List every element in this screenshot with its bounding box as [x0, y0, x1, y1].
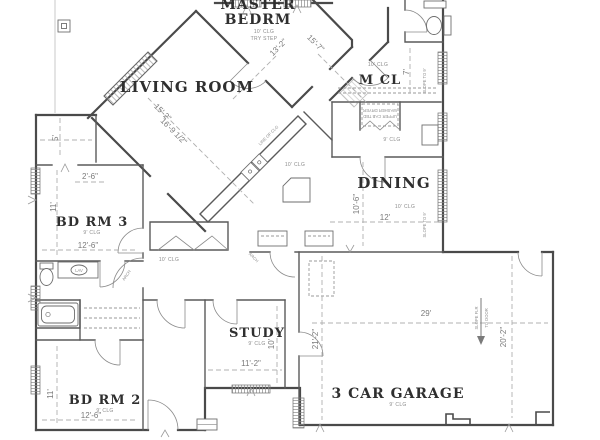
study-dim-w: 11'-2" — [241, 359, 261, 368]
door-arc-front — [148, 400, 178, 430]
mcl-dim: 7' — [402, 69, 411, 75]
door-arc-wc — [405, 10, 427, 32]
porch-side-dim: 21'-2" — [311, 329, 320, 350]
floor-plan-canvas: MASTER BEDRM 10' CLG TRY STEP 13'-2" 15'… — [0, 0, 600, 440]
garage-slope-note-1: SLOPE FLR — [474, 306, 479, 329]
room-label-dining: DINING — [357, 174, 430, 192]
water-heater — [309, 261, 334, 296]
garage-pier — [446, 414, 470, 425]
living-dim-2: 16'-9 1/2" — [159, 116, 189, 146]
toilet-icon — [40, 269, 53, 286]
bdrm3-clg-note: 9' CLG — [83, 230, 100, 236]
hall-clg-note: 10' CLG — [159, 257, 179, 263]
door-arc-study — [213, 300, 237, 324]
door-arc-bdrm3 — [118, 228, 143, 253]
window-seat — [305, 231, 333, 246]
doors — [95, 10, 542, 430]
master-dim-2: 15'-7" — [305, 33, 326, 54]
kitchen-sink-icon — [241, 154, 268, 181]
door-arc-hall — [157, 300, 185, 328]
room-label-bdrm3: BD RM 3 — [56, 215, 129, 230]
laundry-note-1: WASHER DRYER — [363, 108, 397, 113]
window — [232, 385, 270, 393]
closet-depth-dim: 5' — [51, 135, 60, 141]
garage-pier — [536, 412, 550, 425]
window — [438, 52, 447, 84]
chase — [422, 125, 438, 145]
window — [438, 170, 447, 222]
floor-plan-svg: MASTER BEDRM 10' CLG TRY STEP 13'-2" 15'… — [0, 0, 600, 440]
line-of-clg-note: LINE OF CLG — [257, 124, 279, 146]
garage-dim-h: 20'-2" — [499, 327, 508, 348]
lav-label: LAV — [75, 268, 83, 273]
arch-note-2: ARCH — [248, 251, 260, 263]
toilet-icon — [444, 16, 451, 35]
bdrm3-dim-h: 11' — [49, 202, 58, 212]
garage-steps — [293, 398, 304, 428]
room-label-master-line2: BEDRM — [225, 12, 292, 28]
slope-note-1: SLOPE TO 9' — [422, 68, 427, 93]
mcl-clg-note: 10' CLG — [368, 62, 388, 68]
garage-clg-note: 9' CLG — [389, 402, 406, 408]
kitchen-island — [283, 178, 310, 202]
room-label-living: LIVING ROOM — [120, 78, 254, 96]
dining-dim-w: 12' — [380, 213, 391, 222]
dining-clg-note: 10' CLG — [395, 204, 415, 210]
door-arc-bath — [100, 261, 125, 287]
tub-inner — [42, 306, 75, 323]
porch-column-inner — [62, 24, 67, 29]
linen-shelves — [84, 308, 140, 328]
door-arc-garage-side — [518, 252, 542, 276]
bifold-closet — [158, 236, 228, 250]
room-label-garage: 3 CAR GARAGE — [331, 386, 464, 402]
dimension-lines — [40, 0, 548, 424]
slope-arrow — [477, 336, 485, 345]
laundry-note-2: UPPER CAB TBD — [363, 114, 397, 119]
bdrm3-dim-w: 12'-6" — [78, 241, 99, 250]
window — [438, 113, 447, 141]
study-clg-note: 9' CLG — [248, 341, 265, 347]
bifold-laundry — [360, 121, 400, 130]
window — [31, 168, 40, 194]
slope-note-2: SLOPE TO 9' — [422, 212, 427, 237]
arch-opening — [270, 252, 295, 277]
dining-dim-h: 10'-6" — [352, 194, 361, 215]
arch-note-1: ARCH — [121, 269, 132, 282]
bdrm2-dim-w: 12'-6" — [81, 411, 102, 420]
garage-slope-note-2: TO DOOR — [484, 308, 489, 327]
door-arc-bdrm2 — [95, 340, 120, 365]
master-clg-note: 10' CLG — [254, 29, 274, 35]
kitchen-clg-note: 10' CLG — [285, 162, 305, 168]
room-label-mcl: M CL — [359, 73, 401, 88]
study-dim-h: 10' — [267, 338, 276, 349]
garage-dim-w: 29' — [421, 309, 432, 318]
toilet-icon — [427, 17, 442, 35]
closet-width-dim: 2'-6" — [82, 172, 98, 181]
room-label-study: STUDY — [229, 326, 285, 341]
room-label-bdrm2: BD RM 2 — [69, 393, 142, 408]
window — [31, 366, 40, 394]
walls-diagonal-core — [88, 0, 388, 231]
hall2-clg-note: 9' CLG — [383, 137, 400, 143]
wc-cabinet — [424, 1, 446, 8]
bdrm2-dim-h: 11' — [46, 389, 55, 399]
window-seat — [258, 231, 287, 246]
master-ceiling-step-note: TRY STEP — [251, 36, 278, 42]
